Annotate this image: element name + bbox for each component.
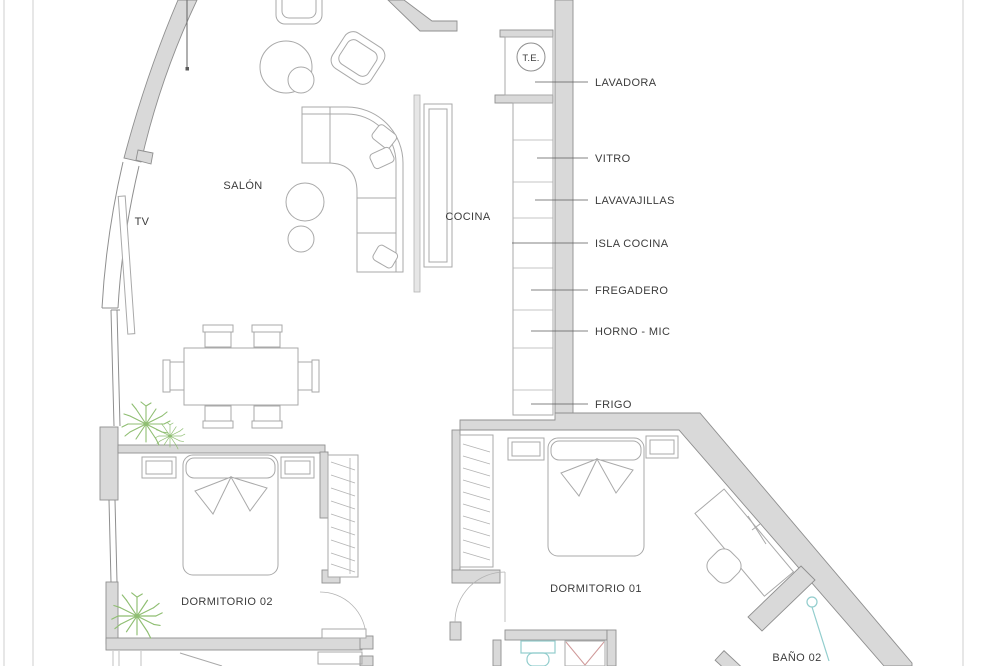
room-label-salon: SALÓN (223, 179, 262, 192)
sofa (302, 107, 403, 272)
callout-frigo: FRIGO (595, 399, 632, 411)
plant-icon (122, 402, 170, 445)
wardrobe-dormitorio-02 (328, 455, 358, 577)
armchair-side (327, 28, 388, 88)
wardrobe-dormitorio-01 (460, 435, 493, 567)
kitchen-island (424, 104, 452, 267)
callout-lavavajillas: LAVAVAJILLAS (595, 195, 675, 207)
callout-fregadero: FREGADERO (595, 285, 668, 297)
coffee-tables-mid (286, 183, 324, 252)
salon-diagonal-wall (388, 0, 457, 31)
terrace-door-leaf (322, 629, 366, 638)
tv-unit (118, 196, 135, 334)
room-label-bano-02: BAÑO 02 (772, 651, 821, 664)
dorm02-window (109, 500, 117, 582)
coffee-tables-top (260, 41, 314, 93)
dormitorio-01 (460, 435, 793, 596)
kitchen-wall (555, 0, 573, 413)
salon-kitchen-partition (414, 95, 420, 292)
plants-layer (112, 402, 185, 638)
te-label: T.E. (522, 53, 539, 64)
dorm02-top-wall (118, 445, 325, 453)
cabinet-dividers (513, 140, 553, 390)
floor-plan-svg: T.E. (0, 0, 1000, 666)
dining-set (163, 325, 319, 428)
callout-isla-cocina: ISLA COCINA (595, 238, 669, 250)
room-label-dormitorio-01: DORMITORIO 01 (550, 583, 642, 595)
armchair-top (276, 0, 322, 24)
bed-dormitorio-02 (183, 455, 278, 575)
dorm02-bottom-wall (106, 638, 362, 650)
dimension-dot (186, 67, 190, 71)
callout-vitro: VITRO (595, 153, 631, 165)
bath-01 (521, 641, 605, 666)
callout-horno-mic: HORNO - MIC (595, 326, 670, 338)
toilet (521, 641, 555, 666)
dorm01-left-wall (452, 430, 460, 578)
room-label-cocina: COCINA (445, 211, 490, 223)
kitchen: T.E. (424, 37, 553, 415)
kitchen-callouts: LAVADORA VITRO LAVAVAJILLAS ISLA COCINA … (512, 77, 675, 411)
te-marker: T.E. (517, 43, 545, 71)
plant-icon (112, 593, 162, 638)
kitchen-cabinets (513, 103, 553, 415)
room-label-tv: TV (135, 216, 150, 228)
floor-plan-page: T.E. (0, 0, 1000, 666)
room-label-dormitorio-02: DORMITORIO 02 (181, 596, 273, 608)
laundry-closet (505, 37, 553, 95)
dining-window (111, 310, 120, 426)
dining-table (184, 348, 298, 405)
terrace-items (113, 651, 362, 666)
shower (565, 641, 605, 666)
curved-wall (124, 0, 197, 162)
bed-dormitorio-01 (548, 438, 644, 556)
shower-drain (807, 597, 817, 607)
callout-lavadora: LAVADORA (595, 77, 657, 89)
